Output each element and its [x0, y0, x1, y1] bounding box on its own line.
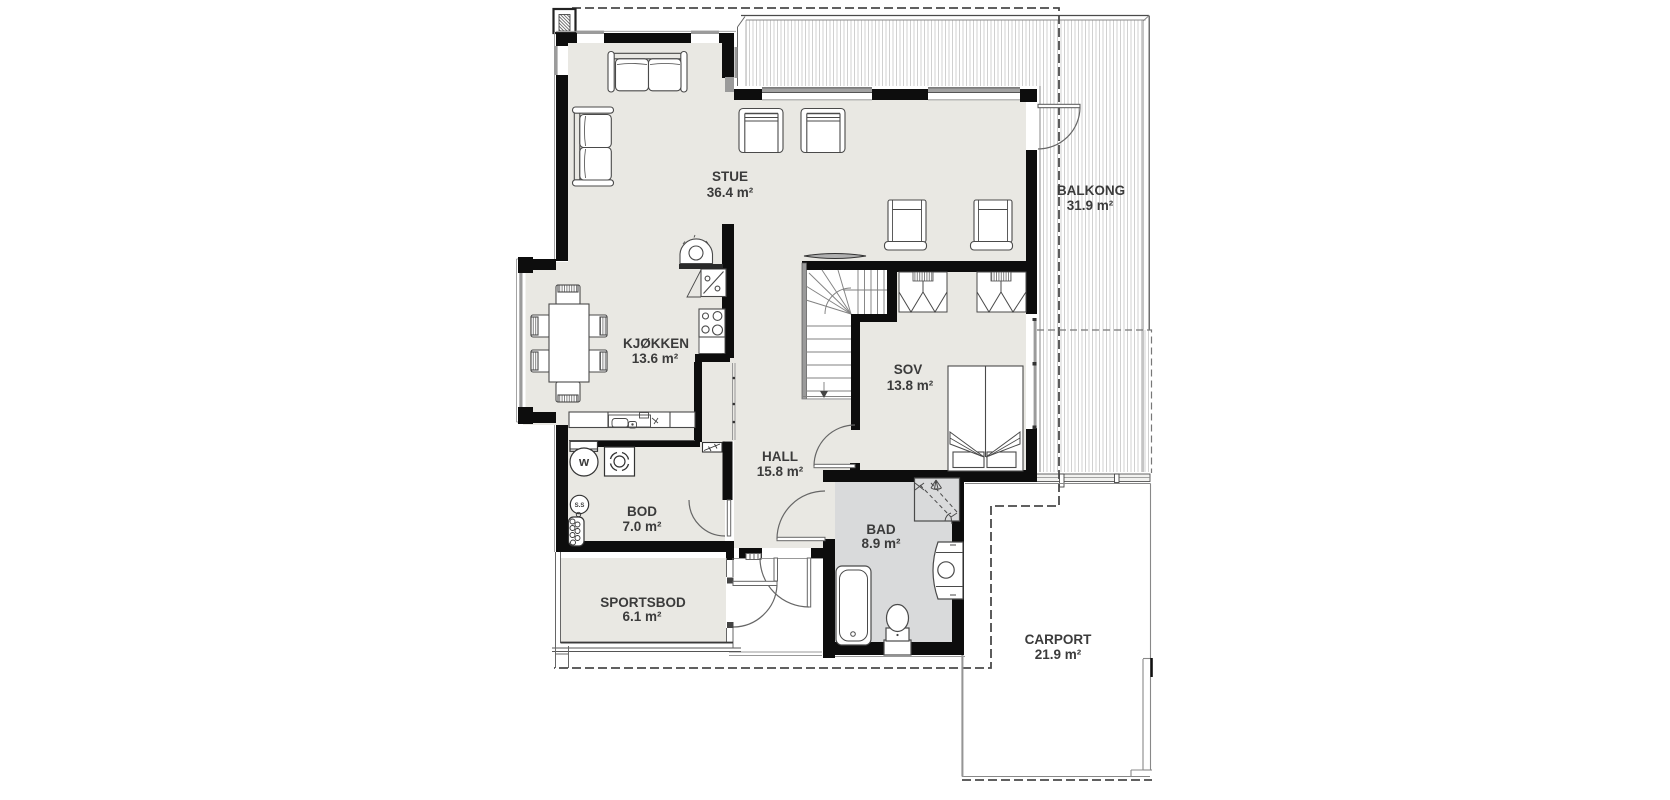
- svg-text:STUE: STUE: [712, 169, 748, 184]
- svg-text:SOV: SOV: [894, 362, 923, 377]
- svg-text:KJØKKEN: KJØKKEN: [623, 336, 689, 351]
- svg-text:15.8 m²: 15.8 m²: [757, 464, 804, 479]
- svg-text:CARPORT: CARPORT: [1025, 632, 1093, 647]
- svg-text:HALL: HALL: [762, 449, 798, 464]
- svg-text:13.6 m²: 13.6 m²: [632, 351, 679, 366]
- svg-text:BOD: BOD: [627, 504, 657, 519]
- svg-text:7.0 m²: 7.0 m²: [622, 519, 662, 534]
- svg-text:36.4 m²: 36.4 m²: [707, 185, 754, 200]
- svg-text:w: w: [578, 454, 590, 469]
- svg-text:8.9 m²: 8.9 m²: [861, 536, 901, 551]
- svg-text:31.9 m²: 31.9 m²: [1067, 198, 1114, 213]
- svg-text:21.9 m²: 21.9 m²: [1035, 647, 1082, 662]
- svg-text:13.8 m²: 13.8 m²: [887, 378, 934, 393]
- svg-text:BALKONG: BALKONG: [1057, 183, 1125, 198]
- svg-text:S.S: S.S: [575, 503, 585, 509]
- svg-text:6.1 m²: 6.1 m²: [622, 609, 662, 624]
- svg-text:SPORTSBOD: SPORTSBOD: [600, 595, 686, 610]
- svg-text:BAD: BAD: [866, 522, 895, 537]
